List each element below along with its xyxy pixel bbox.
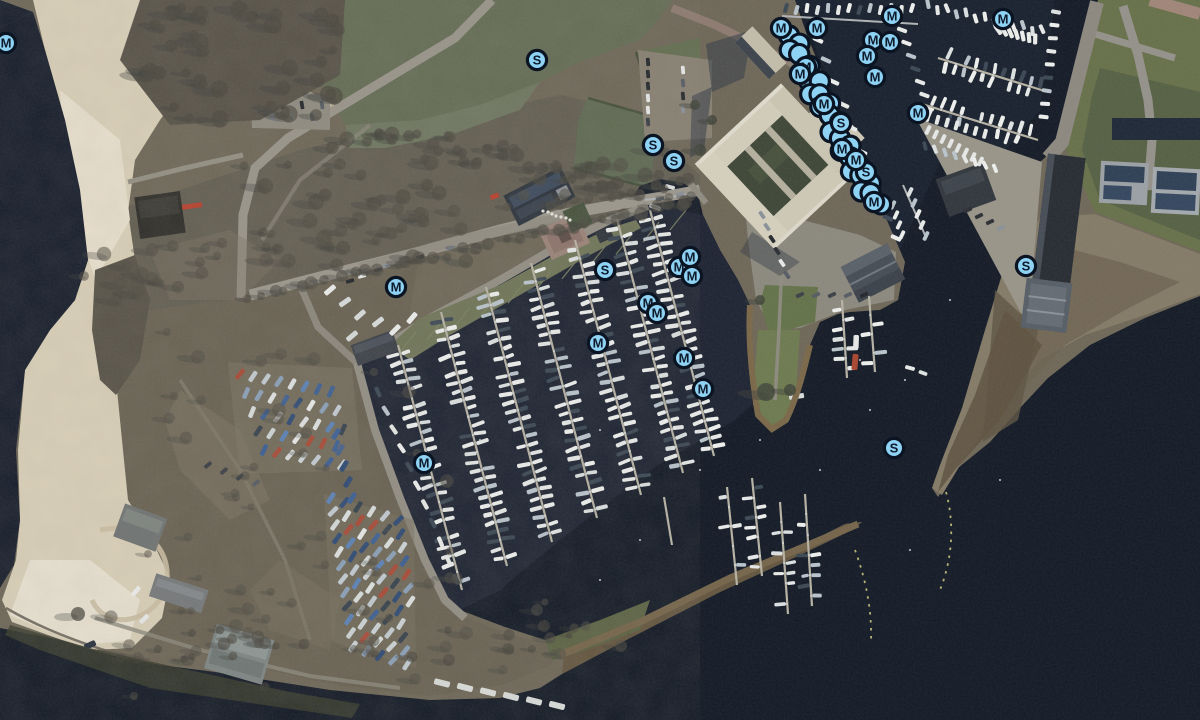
svg-text:M: M: [685, 250, 696, 265]
svg-text:S: S: [649, 138, 658, 153]
svg-text:M: M: [869, 195, 880, 210]
svg-text:M: M: [687, 269, 698, 284]
svg-text:M: M: [698, 382, 709, 397]
svg-text:M: M: [795, 67, 806, 82]
svg-text:S: S: [533, 53, 542, 68]
svg-text:M: M: [1, 36, 12, 51]
svg-text:M: M: [862, 49, 873, 64]
svg-text:M: M: [812, 21, 823, 36]
svg-text:M: M: [391, 280, 402, 295]
svg-text:S: S: [1022, 259, 1031, 274]
svg-text:M: M: [837, 142, 848, 157]
svg-text:M: M: [819, 97, 830, 112]
svg-text:M: M: [870, 70, 881, 85]
svg-text:S: S: [670, 154, 679, 169]
svg-text:M: M: [851, 153, 862, 168]
svg-text:M: M: [887, 9, 898, 24]
svg-text:S: S: [890, 441, 899, 456]
svg-text:S: S: [837, 116, 846, 131]
svg-text:M: M: [776, 21, 787, 36]
svg-text:M: M: [679, 351, 690, 366]
svg-text:M: M: [652, 306, 663, 321]
svg-text:M: M: [593, 336, 604, 351]
svg-text:M: M: [998, 12, 1009, 27]
svg-text:M: M: [885, 35, 896, 50]
svg-text:S: S: [601, 263, 610, 278]
svg-text:M: M: [419, 456, 430, 471]
svg-text:M: M: [913, 106, 924, 121]
